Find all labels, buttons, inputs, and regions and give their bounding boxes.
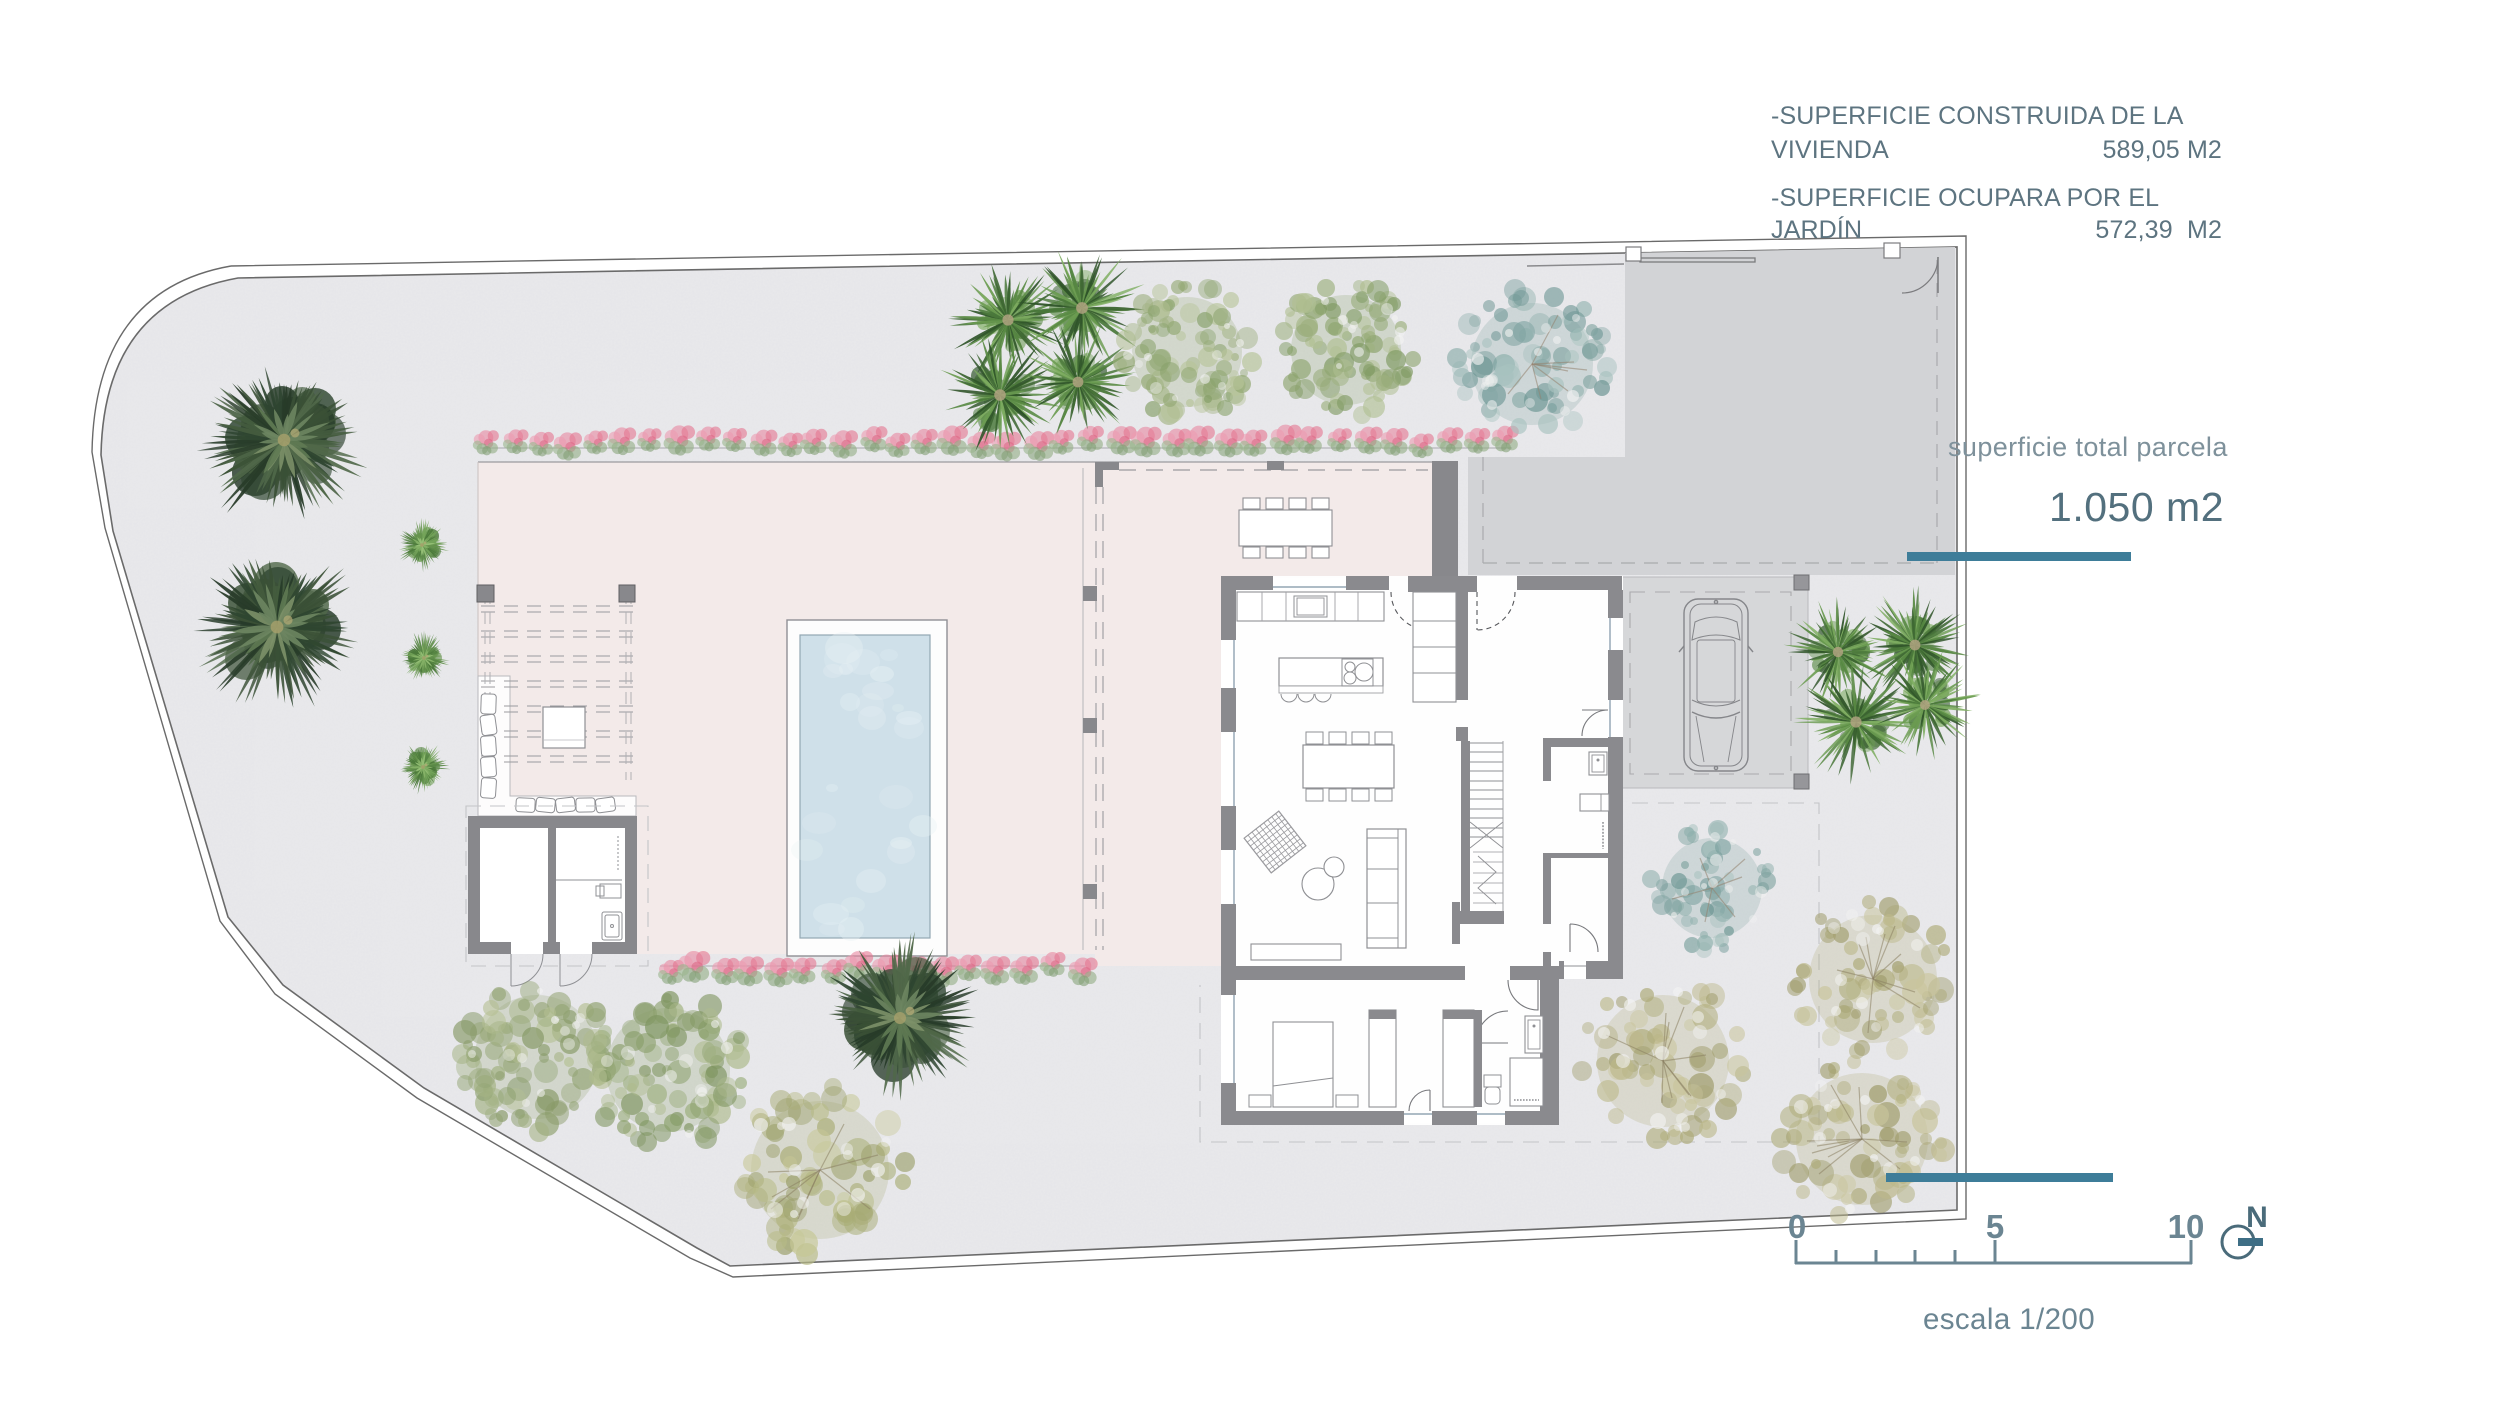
svg-text:VIVIENDA: VIVIENDA [1771,136,1889,164]
svg-text:escala 1/200: escala 1/200 [1923,1303,2095,1336]
svg-text:0: 0 [1788,1208,1806,1245]
svg-text:572,39 M2: 572,39 M2 [2095,216,2222,244]
svg-text:superficie total parcela: superficie total parcela [1948,432,2228,462]
svg-text:JARDÍN: JARDÍN [1771,215,1862,244]
svg-text:-SUPERFICIE OCUPARA POR EL: -SUPERFICIE OCUPARA POR EL [1771,184,2159,212]
svg-text:10: 10 [2168,1208,2205,1245]
svg-text:-SUPERFICIE CONSTRUIDA DE LA: -SUPERFICIE CONSTRUIDA DE LA [1771,102,2184,130]
svg-text:1.050 m2: 1.050 m2 [2049,484,2224,530]
svg-text:5: 5 [1986,1208,2004,1245]
svg-text:N: N [2246,1201,2268,1234]
svg-text:589,05 M2: 589,05 M2 [2103,136,2223,164]
